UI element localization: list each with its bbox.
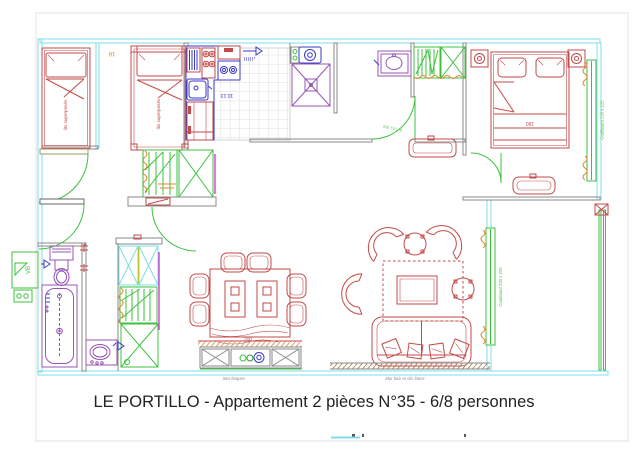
bunk2-label: lits superposés (156, 98, 161, 129)
sideboard (198, 341, 302, 369)
floorplan-page: lits superposés lits superposés 16 (0, 0, 640, 452)
wood-wall-label: Mur bois et clin blanc (385, 376, 425, 381)
floorplan-drawing: lits superposés lits superposés 16 (0, 0, 640, 452)
dimension-16: 16 (108, 50, 115, 56)
living-window-label: Coulissant 220 x 225 (498, 267, 503, 307)
brick-wall-label: Mur briques (223, 376, 246, 381)
bedroom-window-label: Coulissant 220 x 225 (600, 100, 605, 140)
shower (292, 64, 330, 106)
vb-label: VB (26, 266, 32, 274)
bunk1-label: lits superposés (63, 99, 68, 130)
vb-window: VB (12, 252, 38, 302)
wood-wall-hatch (330, 363, 490, 369)
page-title: LE PORTILLO - Appartement 2 pièces N°35 … (93, 393, 534, 411)
kitchen-area-label: 10.13 (221, 92, 234, 98)
bed-size-label: 160 (526, 120, 535, 126)
